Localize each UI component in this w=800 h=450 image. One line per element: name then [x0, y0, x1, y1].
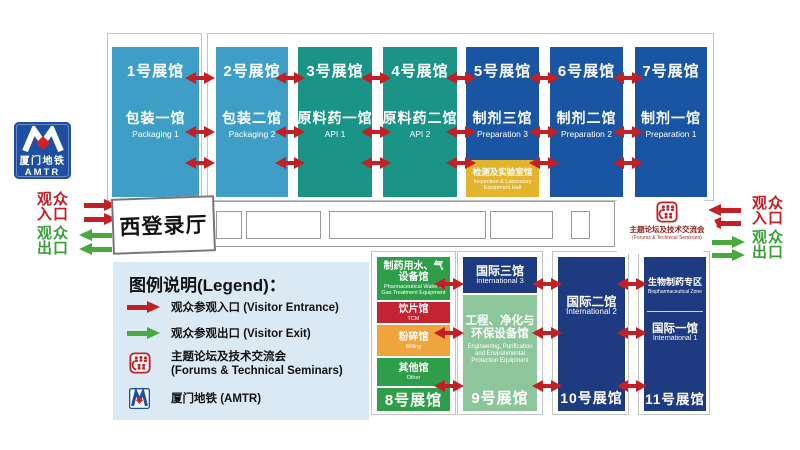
hall-number: 5号展馆 — [474, 60, 531, 81]
double-arrow-icon — [361, 126, 391, 138]
visitor-exit-label-right: 观众 出口 — [752, 230, 784, 260]
double-arrow-icon — [434, 327, 464, 339]
legend-exit-label: 观众参观出口 (Visitor Exit) — [171, 327, 311, 341]
hall-name-cn: 原料药一馆 — [298, 108, 373, 128]
double-arrow-icon — [446, 72, 476, 84]
hall-name-cn: 制剂一馆 — [641, 108, 701, 128]
double-arrow-icon — [361, 72, 391, 84]
hall-number: 1号展馆 — [127, 60, 184, 81]
hall-name-en: Preparation 1 — [645, 129, 696, 139]
double-arrow-icon — [185, 72, 215, 84]
exit-arrow-icon — [712, 249, 745, 262]
double-arrow-icon — [185, 157, 215, 169]
amtr-name-en: AMTR — [25, 167, 60, 178]
amtr-metro-logo: 厦门地铁 AMTR — [14, 122, 71, 179]
exit-arrow-icon — [79, 229, 112, 242]
hall-2: 2号展馆 包装二馆 Packaging 2 — [216, 47, 288, 197]
double-arrow-icon — [617, 380, 647, 392]
double-arrow-icon — [613, 126, 643, 138]
hall-name-en: API 1 — [325, 129, 346, 139]
double-arrow-icon — [361, 157, 391, 169]
seminars-name-cn: 主题论坛及技术交流会 — [630, 224, 705, 235]
hall-number: 8号展馆 — [377, 389, 450, 410]
hall-name-cn: 包装一馆 — [126, 108, 186, 128]
corridor-room — [329, 211, 486, 239]
section-name-en: International 3 — [463, 278, 537, 284]
section-name-en: TCM — [377, 316, 450, 322]
hall-number: 4号展馆 — [391, 60, 448, 81]
exit-arrow-icon — [79, 243, 112, 256]
double-arrow-icon — [529, 72, 559, 84]
double-arrow-icon — [434, 278, 464, 290]
legend-title: 图例说明(Legend)： — [129, 271, 286, 296]
corridor-room — [571, 211, 590, 239]
hall-9-container: 国际三馆 International 3 工程、净化与环保设备馆 Enginee… — [457, 251, 543, 415]
hall-name-cn: 制剂三馆 — [473, 108, 533, 128]
hall-name-en: Packaging 2 — [229, 129, 276, 139]
double-arrow-icon — [446, 157, 476, 169]
hall-number: 3号展馆 — [306, 60, 363, 81]
hall-1: 1号展馆 包装一馆 Packaging 1 — [112, 47, 199, 197]
exit-arrow-icon — [127, 327, 160, 340]
legend-seminars-label: 主题论坛及技术交流会 (Forums & Technical Seminars) — [171, 350, 343, 378]
halls-2-7-container: 2号展馆 包装二馆 Packaging 2 3号展馆 原料药一馆 API 1 4… — [207, 33, 714, 201]
corridor-room — [490, 211, 553, 239]
hall-number: 9号展馆 — [463, 387, 537, 408]
visitor-entrance-label-right: 观众 入口 — [752, 196, 784, 226]
hall-3: 3号展馆 原料药一馆 API 1 — [298, 47, 372, 197]
hall-number: 2号展馆 — [223, 60, 280, 81]
inspection-name-en: Inspection & Laboratory Equipment Hall — [466, 179, 539, 192]
international-1-hall: 生物制药专区 Biopharmaceutical Zone 国际一馆 Inter… — [644, 257, 706, 411]
amtr-name-cn: 厦门地铁 — [20, 152, 66, 167]
hall-name-en: Preparation 3 — [477, 129, 528, 139]
hall-name-cn: 制剂二馆 — [557, 108, 617, 128]
hall-number: 11号展馆 — [644, 388, 706, 408]
hall-number: 10号展馆 — [558, 388, 625, 408]
hall-6: 6号展馆 制剂二馆 Preparation 2 — [550, 47, 623, 197]
visitor-entrance-label-left: 观众 入口 — [37, 192, 69, 222]
double-arrow-icon — [613, 157, 643, 169]
amtr-m-icon — [19, 126, 67, 152]
double-arrow-icon — [434, 380, 464, 392]
zone-divider — [647, 311, 703, 312]
double-arrow-icon — [446, 126, 476, 138]
hall-number: 7号展馆 — [642, 60, 699, 81]
exhibition-floor-plan: 1号展馆 包装一馆 Packaging 1 2号展馆 包装二馆 Packagin… — [0, 0, 800, 450]
international-2-hall: 国际二馆 International 2 10号展馆 — [558, 257, 625, 411]
double-arrow-icon — [613, 72, 643, 84]
double-arrow-icon — [275, 157, 305, 169]
corridor-room — [216, 211, 242, 239]
exit-arrow-icon — [712, 236, 745, 249]
international-3-hall: 国际三馆 International 3 — [463, 257, 537, 293]
central-corridor — [211, 201, 615, 247]
biopharma-zone-cn: 生物制药专区 — [644, 277, 706, 288]
section-name-cn: 其他馆 — [377, 363, 450, 374]
hall-1-container: 1号展馆 包装一馆 Packaging 1 — [107, 33, 202, 201]
corridor-room — [246, 211, 321, 239]
seminar-audience-icon — [656, 201, 678, 223]
double-arrow-icon — [529, 157, 559, 169]
double-arrow-icon — [185, 126, 215, 138]
hall-name-en: Preparation 2 — [561, 129, 612, 139]
hall-5: 5号展馆 制剂三馆 Preparation 3 检测及实验室馆 Inspecti… — [466, 47, 539, 197]
seminars-name-en: (Forums & Technical Seminars) — [632, 235, 702, 241]
engineering-purification-hall: 工程、净化与环保设备馆 Engineering, Purification an… — [463, 295, 537, 411]
double-arrow-icon — [617, 278, 647, 290]
double-arrow-icon — [532, 327, 562, 339]
double-arrow-icon — [532, 278, 562, 290]
west-registration-hall: 西登录厅 — [111, 195, 216, 255]
hall-7: 7号展馆 制剂一馆 Preparation 1 — [635, 47, 707, 197]
legend-amtr-label: 厦门地铁 (AMTR) — [171, 392, 261, 406]
double-arrow-icon — [532, 380, 562, 392]
legend-panel: 图例说明(Legend)： 观众参观入口 (Visitor Entrance) … — [113, 262, 369, 420]
entrance-arrow-icon — [127, 301, 160, 314]
hall-11-container: 生物制药专区 Biopharmaceutical Zone 国际一馆 Inter… — [638, 251, 710, 415]
visitor-exit-label-left: 观众 出口 — [37, 226, 69, 256]
tcm-hall: 饮片馆 TCM — [377, 302, 450, 323]
section-name-cn: 工程、净化与环保设备馆 — [463, 315, 537, 341]
double-arrow-icon — [275, 72, 305, 84]
forums-seminars-box: 主题论坛及技术交流会 (Forums & Technical Seminars) — [617, 197, 717, 254]
section-name-en: Milling — [377, 344, 450, 350]
legend-entrance-label: 观众参观入口 (Visitor Entrance) — [171, 301, 339, 315]
section-name-cn: 国际一馆 — [644, 324, 706, 335]
section-name-cn: 饮片馆 — [377, 304, 450, 315]
double-arrow-icon — [275, 126, 305, 138]
seminar-audience-icon — [129, 352, 151, 374]
hall-name-cn: 包装二馆 — [222, 108, 282, 128]
biopharma-zone-en: Biopharmaceutical Zone — [644, 289, 706, 295]
section-name-en: Engineering, Purification and Environmen… — [463, 344, 537, 365]
entrance-arrow-icon — [708, 204, 741, 217]
double-arrow-icon — [529, 126, 559, 138]
hall-name-en: Packaging 1 — [132, 129, 179, 139]
amtr-m-icon — [129, 388, 150, 409]
hall-4: 4号展馆 原料药二馆 API 2 — [383, 47, 457, 197]
hall-name-cn: 原料药二馆 — [383, 108, 458, 128]
hall-number: 6号展馆 — [558, 60, 615, 81]
hall-name-en: API 2 — [410, 129, 431, 139]
double-arrow-icon — [617, 327, 647, 339]
